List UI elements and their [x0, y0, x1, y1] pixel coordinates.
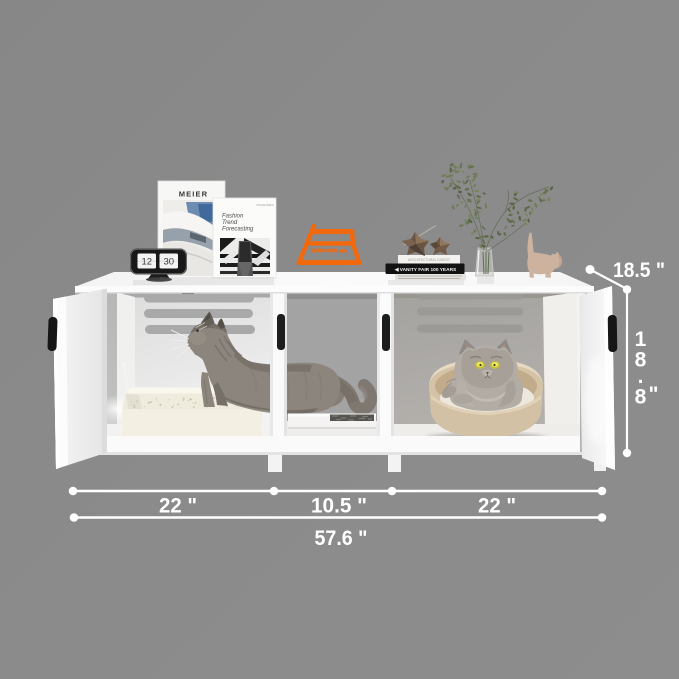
svg-text:10.5 ": 10.5 " — [311, 495, 367, 518]
svg-text:◀ VANITY FAIR 100 YEARS: ◀ VANITY FAIR 100 YEARS — [394, 267, 457, 273]
svg-text:Trend: Trend — [222, 220, 238, 226]
svg-text:30: 30 — [164, 257, 175, 268]
svg-text:MEIER: MEIER — [179, 190, 209, 199]
svg-text:22 ": 22 " — [159, 495, 197, 518]
svg-text:22 ": 22 " — [478, 495, 516, 518]
svg-text:57.6 ": 57.6 " — [315, 527, 368, 550]
svg-text:Forecasting: Forecasting — [222, 227, 254, 233]
svg-text:ARCHITECTURAL DIGEST: ARCHITECTURAL DIGEST — [408, 258, 450, 262]
svg-text:": " — [649, 383, 659, 406]
svg-text:12: 12 — [142, 257, 153, 268]
svg-text:VOGUE PARIS: VOGUE PARIS — [256, 203, 274, 207]
svg-text:18.5 ": 18.5 " — [613, 259, 665, 282]
svg-text:8: 8 — [635, 386, 647, 409]
svg-text:Fashion: Fashion — [222, 214, 244, 220]
